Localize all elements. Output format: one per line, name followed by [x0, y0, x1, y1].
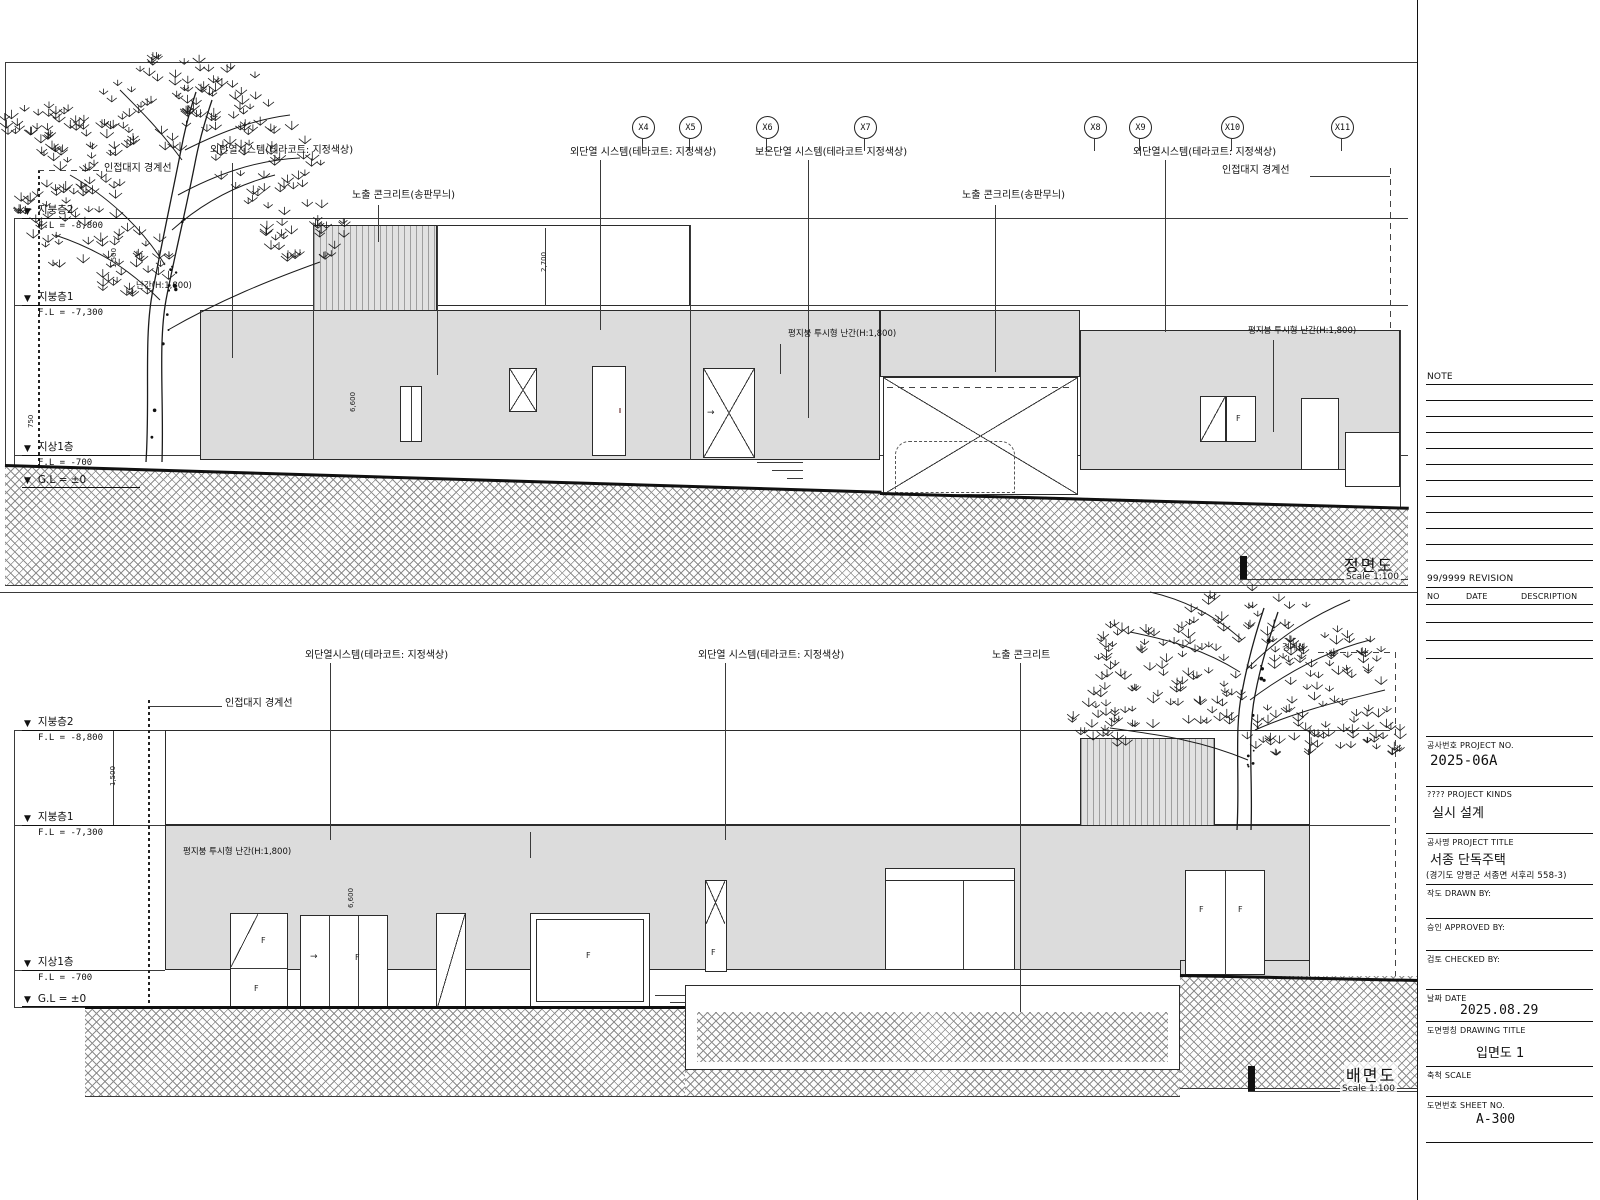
grid-label: X10 [1225, 123, 1240, 133]
project-title-value: 서종 단독주택 [1430, 849, 1506, 868]
field-rule [1426, 950, 1593, 951]
garage-upper-wall [880, 310, 1080, 377]
grid-label: X8 [1090, 123, 1100, 133]
grid-bubble-x8: X8 [1084, 116, 1107, 139]
step-line [787, 478, 803, 479]
revision-rule [1426, 604, 1593, 605]
step-line [670, 1002, 685, 1003]
car-silhouette [895, 441, 1015, 493]
grid-label: X6 [762, 123, 772, 133]
fixed-window-mark: F [355, 953, 360, 962]
wall-edge [437, 225, 438, 375]
step-line [655, 995, 685, 996]
field-rule [1426, 1066, 1593, 1067]
level-marker-1f: ▼ 지상1층 [22, 439, 130, 456]
leader-line [530, 832, 531, 858]
approved-by-label: 승인 APPROVED BY: [1427, 922, 1505, 933]
leader-line [232, 163, 233, 358]
title-bar-icon [1240, 556, 1247, 580]
window-fixed-right [1226, 396, 1256, 442]
title-bar-icon [1248, 1066, 1255, 1092]
main-wall-left [200, 310, 880, 460]
revision-label: 99/9999 REVISION [1427, 574, 1513, 584]
window-mullion [411, 387, 412, 441]
level-marker-roof1: ▼ 지붕층1 [22, 809, 130, 826]
note-rule [1426, 480, 1593, 481]
level-marker-roof1: ▼ 지붕층1 [22, 289, 130, 306]
level-name: 지붕층2 [38, 714, 74, 729]
leader-line [1020, 663, 1021, 1012]
window-sliding [300, 915, 388, 1010]
field-rule [1426, 1021, 1593, 1022]
level-marker-1f: ▼ 지상1층 [22, 954, 130, 971]
project-no-label: 공사번호 PROJECT NO. [1427, 740, 1514, 751]
wall-edge [313, 225, 314, 460]
level-marker-roof2: ▼ 지붕층2 [22, 714, 130, 731]
revision-rule [1426, 587, 1593, 588]
window-mullion [1225, 871, 1226, 974]
project-kinds-label: ???? PROJECT KINDS [1427, 790, 1512, 799]
label-exposed-concrete: 노출 콘크리트 [992, 651, 1050, 662]
front-elevation-scale: Scale 1:100 [1344, 572, 1401, 582]
dim-text: 1,500 [110, 248, 118, 268]
level-extension-line [14, 218, 15, 488]
level-line-gl [14, 1007, 85, 1008]
note-rule [1426, 560, 1593, 561]
note-rule [1426, 432, 1593, 433]
level-name: 지붕층2 [38, 202, 74, 217]
drawing-title-value: 입면도 1 [1476, 1042, 1524, 1061]
wall-edge [1400, 330, 1401, 508]
grid-label: X9 [1135, 123, 1145, 133]
fixed-window-mark: F [586, 951, 591, 960]
note-rule [1426, 400, 1593, 401]
level-fl: F.L = -700 [38, 973, 92, 983]
grid-label: X5 [685, 123, 695, 133]
step-line [757, 462, 803, 463]
fixed-window-mark: F [261, 936, 266, 945]
field-rule [1426, 833, 1593, 834]
label-curtainwall: 외단열시스템(테라코트: 지정색상) [305, 651, 448, 662]
label-exposed-concrete-left: 노출 콘크리트(송판무늬) [352, 191, 455, 202]
level-extension-line [14, 730, 15, 1007]
sliding-arrow: → [310, 953, 318, 962]
level-fl: F.L = -8,800 [38, 221, 103, 231]
right-lower-volume [1345, 432, 1400, 487]
level-name: G.L = ±0 [38, 474, 86, 486]
hatch-bottom-edge [685, 1096, 1180, 1097]
rear-elevation-title: 배면도 [1344, 1062, 1398, 1086]
level-triangle-icon: ▼ [24, 208, 31, 217]
revision-rule [1426, 622, 1593, 623]
window-glass-wall [885, 880, 1015, 970]
level-fl: F.L = -7,300 [38, 828, 103, 838]
level-fl: F.L = -700 [38, 458, 92, 468]
level-triangle-icon: ▼ [24, 996, 31, 1005]
window-divider [231, 968, 287, 969]
leader-line [1310, 176, 1390, 177]
level-triangle-icon: ▼ [24, 445, 31, 454]
property-line-right [1390, 168, 1391, 340]
sheet-top-border [5, 62, 1417, 63]
label-railing-3: 난간(H:1,800) [136, 282, 192, 291]
boundary-line-top-right [1318, 652, 1395, 653]
note-rule [1426, 496, 1593, 497]
field-rule [1426, 884, 1593, 885]
garage-door-track [887, 387, 1074, 388]
grid-bubble-x4: X4 [632, 116, 655, 139]
label-exposed-concrete-right: 노출 콘크리트(송판무늬) [962, 191, 1065, 202]
project-no-value: 2025-06A [1430, 753, 1497, 769]
fixed-window-mark: F [1236, 414, 1241, 423]
board-formed-concrete-wall [313, 225, 437, 311]
date-value: 2025.08.29 [1460, 1003, 1538, 1018]
note-rule [1426, 384, 1593, 385]
door-swing-arrow: → [707, 409, 715, 418]
leader-line [725, 663, 726, 840]
leader-line [780, 344, 781, 374]
door-right [1301, 398, 1339, 470]
level-name: 지붕층1 [38, 809, 74, 824]
note-rule [1426, 544, 1593, 545]
terrace-hatch [697, 1012, 1168, 1062]
level-fl: F.L = -7,300 [38, 308, 103, 318]
window-casement [509, 368, 537, 412]
label-railing: 평지붕 투시형 난간(H:1,800) [183, 848, 291, 857]
field-rule [1426, 918, 1593, 919]
note-rule [1426, 464, 1593, 465]
label-eifs-1: 외단열 시스템(테라코트: 지정색상) [570, 148, 716, 159]
scale-label: 축척 SCALE [1427, 1070, 1472, 1081]
property-line-right [1395, 652, 1396, 1010]
label-boundary-short: 경계선 [1282, 644, 1305, 653]
field-rule [1426, 1096, 1593, 1097]
revision-rule [1426, 658, 1593, 659]
checked-by-label: 검토 CHECKED BY: [1427, 954, 1500, 965]
window-mullion [963, 881, 964, 969]
level-triangle-icon: ▼ [24, 960, 31, 969]
rear-elevation-scale: Scale 1:100 [1340, 1084, 1397, 1094]
leader-line [1165, 160, 1166, 332]
sheet-no-value: A-300 [1476, 1112, 1515, 1127]
level-triangle-icon: ▼ [24, 815, 31, 824]
label-boundary-left: 인접대지 경계선 [104, 164, 172, 175]
grid-tick [1341, 138, 1342, 151]
revision-col-desc: DESCRIPTION [1521, 592, 1577, 601]
dim-text: 2,700 [540, 252, 548, 272]
grade-line [85, 1006, 685, 1009]
label-boundary: 인접대지 경계선 [225, 699, 293, 710]
leader-line [995, 205, 996, 372]
grid-bubble-x9: X9 [1129, 116, 1152, 139]
grid-bubble-x10: X10 [1221, 116, 1244, 139]
grid-tick [1094, 138, 1095, 151]
revision-rule [1426, 640, 1593, 641]
ground-hatch-front [5, 464, 1408, 585]
wall-edge [690, 225, 691, 460]
note-label: NOTE [1427, 372, 1453, 382]
field-rule [1426, 1142, 1593, 1143]
dim-text: 750 [27, 415, 35, 428]
boundary-leader [38, 170, 100, 171]
level-line-roof2 [14, 218, 1408, 219]
leader-line [1273, 340, 1274, 432]
fixed-window-mark: F [254, 984, 259, 993]
level-name: G.L = ±0 [38, 993, 86, 1005]
drawing-sheet: X4 X5 X6 X7 X8 X9 X10 X11 → F [0, 0, 1600, 1200]
level-name: 지상1층 [38, 439, 74, 454]
property-line-left [148, 700, 150, 1012]
label-curtainwall-left: 외단열시스템(테라코트: 지정색상) [210, 146, 353, 157]
dim-text: 6,600 [347, 888, 355, 908]
boundary-leader [148, 706, 222, 707]
label-railing-1: 평지붕 투시형 난간(H:1,800) [788, 330, 896, 339]
window-mullion [329, 916, 330, 1009]
board-formed-concrete-wall [1080, 738, 1215, 826]
drawn-by-label: 작도 DRAWN BY: [1427, 888, 1491, 899]
revision-col-no: NO [1427, 592, 1440, 601]
note-rule [1426, 448, 1593, 449]
sheet-no-label: 도면번호 SHEET NO. [1427, 1100, 1505, 1111]
level-line-roof1 [14, 305, 1408, 306]
field-rule [1426, 989, 1593, 990]
project-address: (경기도 양평군 서종면 서후리 558-3) [1426, 869, 1567, 881]
hatch-bottom-edge [85, 1096, 685, 1097]
field-rule [1426, 736, 1593, 737]
level-fl: F.L = -8,800 [38, 733, 103, 743]
level-name: 지붕층1 [38, 289, 74, 304]
level-triangle-icon: ▼ [24, 295, 31, 304]
grid-bubble-x7: X7 [854, 116, 877, 139]
grid-label: X4 [638, 123, 648, 133]
label-eifs-2: 보온단열 시스템(테라코트 지정색상) [755, 148, 907, 159]
ground-hatch-center [685, 1070, 1180, 1096]
door-handle [619, 408, 621, 413]
step-line [772, 470, 803, 471]
grid-label: X7 [860, 123, 870, 133]
window-casement-right [1200, 396, 1226, 442]
grid-label: X11 [1335, 123, 1350, 133]
field-rule [1426, 786, 1593, 787]
label-curtainwall-right: 외단열시스템(테라코트: 지정색상) [1133, 148, 1276, 159]
upper-volume [437, 225, 690, 306]
note-rule [1426, 416, 1593, 417]
label-railing-2: 평지붕 투시형 난간(H:1,800) [1248, 327, 1356, 336]
note-rule [1426, 528, 1593, 529]
level-name: 지상1층 [38, 954, 74, 969]
ground-hatch-left [85, 1008, 685, 1096]
label-eifs: 외단열 시스템(테라코트: 지정색상) [698, 651, 844, 662]
grid-bubble-x11: X11 [1331, 116, 1354, 139]
level-triangle-icon: ▼ [24, 477, 31, 486]
leader-line [378, 205, 379, 242]
drawing-title-label: 도면명칭 DRAWING TITLE [1427, 1025, 1526, 1036]
leader-line [330, 663, 331, 840]
level-marker-gl: ▼ G.L = ±0 [22, 474, 140, 488]
title-block: NOTE 99/9999 REVISION NO DATE DESCRIPTIO… [1417, 0, 1600, 1200]
fixed-window-mark: F [1199, 905, 1204, 914]
fixed-window-mark: F [711, 948, 716, 957]
level-marker-gl: ▼ G.L = ±0 [22, 993, 140, 1007]
grid-bubble-x6: X6 [756, 116, 779, 139]
project-title-label: 공사명 PROJECT TITLE [1427, 837, 1514, 848]
grid-bubble-x5: X5 [679, 116, 702, 139]
leader-line [808, 160, 809, 418]
panel-separator [0, 592, 1417, 593]
note-rule [1426, 512, 1593, 513]
window-diagonal [706, 881, 725, 924]
window-inner-frame [536, 919, 644, 1002]
fixed-window-mark: F [1238, 905, 1243, 914]
leader-line [600, 160, 601, 330]
door-rear [436, 913, 466, 1010]
level-triangle-icon: ▼ [24, 720, 31, 729]
project-kinds-value: 실시 설계 [1432, 802, 1484, 821]
window-mullion [358, 916, 359, 1009]
level-marker-roof2: ▼ 지붕층2 [22, 202, 130, 219]
revision-col-date: DATE [1466, 592, 1488, 601]
dim-text: 6,600 [349, 392, 357, 412]
window-diagonal [231, 914, 258, 967]
dim-text: 1,500 [109, 766, 117, 786]
label-boundary-right: 인접대지 경계선 [1222, 166, 1290, 177]
hatch-bottom-edge [5, 585, 1408, 586]
